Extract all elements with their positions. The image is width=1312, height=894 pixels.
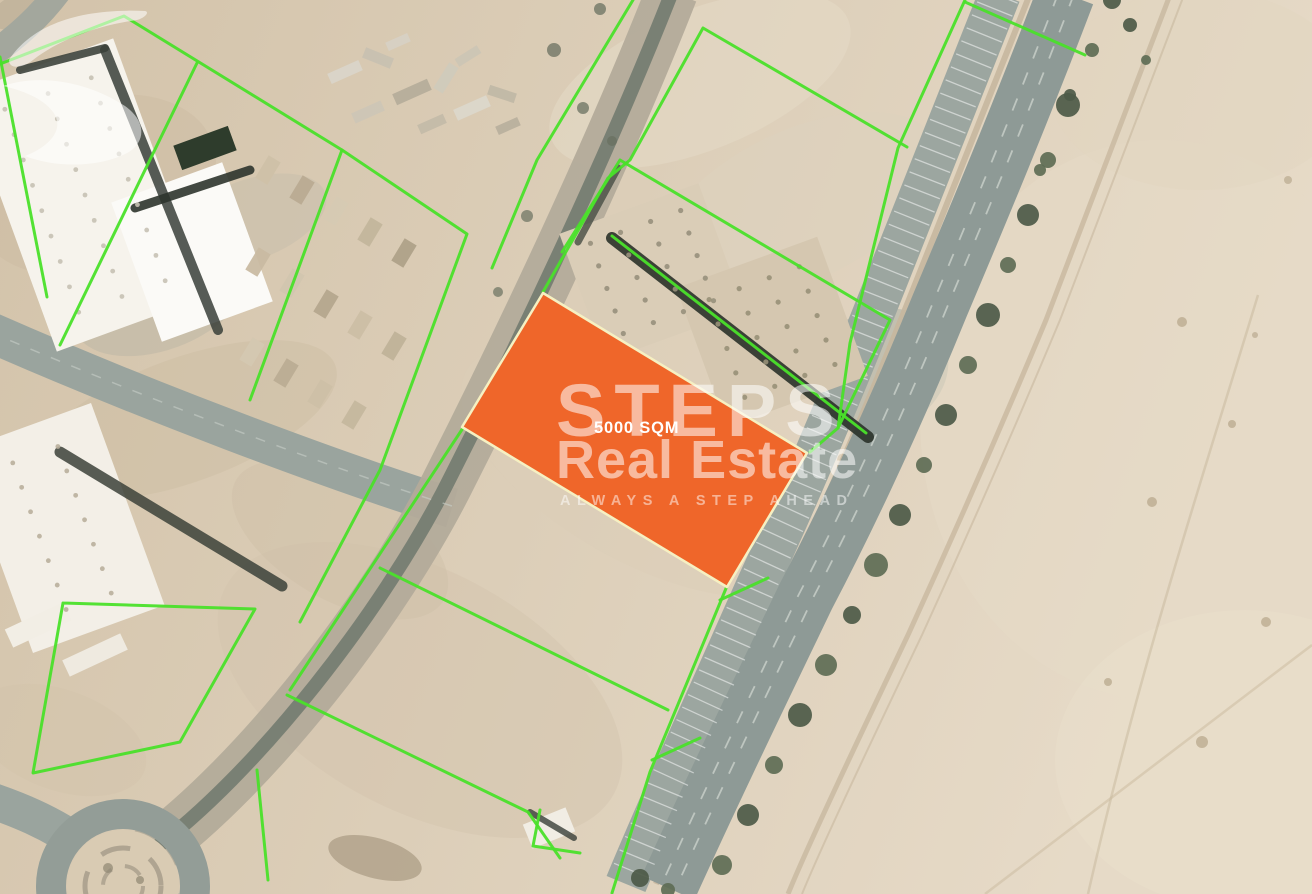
roof-vent-dot (58, 259, 63, 264)
shrub-marker (521, 210, 533, 222)
roof-vent-dot (626, 252, 631, 257)
tree-marker (737, 804, 759, 826)
roof-vent-dot (703, 276, 708, 281)
roof-vent-dot (28, 509, 33, 514)
shrub-marker (1177, 317, 1187, 327)
roof-vent-dot (767, 275, 772, 280)
roof-vent-dot (101, 243, 106, 248)
shrub-marker (136, 876, 144, 884)
roof-vent-dot (643, 297, 648, 302)
shrub-marker (1228, 420, 1236, 428)
roof-vent-dot (82, 517, 87, 522)
tree-marker (1017, 204, 1039, 226)
roof-vent-dot (733, 370, 738, 375)
roof-vent-dot (634, 275, 639, 280)
roof-vent-dot (621, 331, 626, 336)
tree-marker (916, 457, 932, 473)
roof-vent-dot (46, 558, 51, 563)
roof-vent-dot (695, 253, 700, 258)
tree-marker (843, 606, 861, 624)
roof-vent-dot (815, 313, 820, 318)
tree-marker (788, 703, 812, 727)
roof-vent-dot (776, 299, 781, 304)
roof-vent-dot (91, 542, 96, 547)
roof-vent-dot (613, 308, 618, 313)
tree-marker (712, 855, 732, 875)
tree-marker (1123, 18, 1137, 32)
roof-vent-dot (754, 335, 759, 340)
roof-vent-dot (724, 346, 729, 351)
shrub-marker (594, 3, 606, 15)
roof-vent-dot (92, 218, 97, 223)
shrub-marker (1104, 678, 1112, 686)
roof-vent-dot (126, 177, 131, 182)
roof-vent-dot (686, 230, 691, 235)
satellite-map (0, 0, 1312, 894)
roof-vent-dot (163, 278, 168, 283)
tree-marker (631, 869, 649, 887)
plot-area-label: 5000 SQM (594, 419, 679, 438)
shrub-marker (607, 136, 617, 146)
roof-vent-dot (832, 362, 837, 367)
shrub-marker (1261, 617, 1271, 627)
roof-vent-dot (823, 337, 828, 342)
roof-vent-dot (664, 264, 669, 269)
roof-vent-dot (83, 193, 88, 198)
tree-marker (976, 303, 1000, 327)
roof-vent-dot (806, 289, 811, 294)
shrub-marker (547, 43, 561, 57)
roof-vent-dot (763, 359, 768, 364)
tree-marker (1085, 43, 1099, 57)
roof-vent-dot (55, 444, 60, 449)
roof-vent-dot (49, 234, 54, 239)
roof-vent-dot (678, 208, 683, 213)
roof-vent-dot (648, 219, 653, 224)
roof-vent-dot (109, 591, 114, 596)
tree-marker (815, 654, 837, 676)
roof-vent-dot (715, 321, 720, 326)
roof-vent-dot (30, 183, 35, 188)
steps-logo-icon (0, 0, 150, 168)
roof-vent-dot (784, 324, 789, 329)
tree-marker (959, 356, 977, 374)
shrub-marker (103, 863, 113, 873)
roof-vent-dot (618, 230, 623, 235)
shrub-marker (1252, 332, 1258, 338)
roof-vent-dot (120, 294, 125, 299)
roof-vent-dot (39, 208, 44, 213)
roof-vent-dot (681, 309, 686, 314)
roof-vent-dot (711, 298, 716, 303)
tree-marker (864, 553, 888, 577)
roof-vent-dot (604, 286, 609, 291)
roof-vent-dot (55, 583, 60, 588)
satellite-map-image: STEPS Real Estate ALWAYS A STEP AHEAD 50… (0, 0, 1312, 894)
roof-vent-dot (793, 348, 798, 353)
roof-vent-dot (707, 297, 712, 302)
roof-vent-dot (144, 228, 149, 233)
tree-marker (889, 504, 911, 526)
roof-vent-dot (737, 286, 742, 291)
tree-marker (1064, 89, 1076, 101)
shrub-marker (493, 287, 503, 297)
roof-vent-dot (651, 320, 656, 325)
roof-vent-dot (110, 269, 115, 274)
roof-vent-dot (64, 469, 69, 474)
roof-vent-dot (802, 373, 807, 378)
roof-vent-dot (37, 534, 42, 539)
shrub-marker (1147, 497, 1157, 507)
roof-vent-dot (588, 241, 593, 246)
roof-vent-dot (64, 607, 69, 612)
roof-vent-dot (10, 461, 15, 466)
roof-vent-dot (73, 493, 78, 498)
roof-vent-dot (596, 263, 601, 268)
roof-vent-dot (135, 202, 140, 207)
tree-marker (1000, 257, 1016, 273)
roof-vent-dot (19, 485, 24, 490)
roof-vent-dot (656, 241, 661, 246)
tree-marker (1141, 55, 1151, 65)
shrub-marker (577, 102, 589, 114)
roof-vent-dot (745, 310, 750, 315)
tree-marker (765, 756, 783, 774)
shrub-marker (1284, 176, 1292, 184)
map-generated-layer (0, 0, 1312, 894)
roof-vent-dot (67, 284, 72, 289)
roof-vent-dot (100, 566, 105, 571)
shrub-marker (1196, 736, 1208, 748)
roof-vent-dot (772, 384, 777, 389)
tree-marker (935, 404, 957, 426)
roof-vent-dot (742, 395, 747, 400)
roof-vent-dot (154, 253, 159, 258)
tree-marker (1034, 164, 1046, 176)
